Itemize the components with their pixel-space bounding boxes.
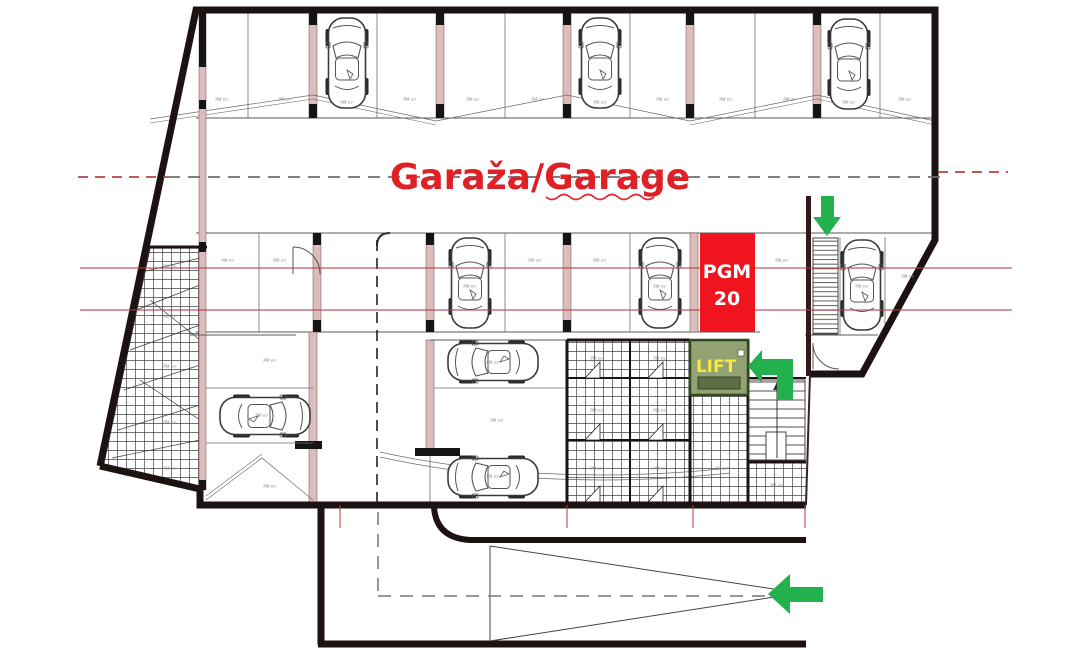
stall-label: PM m² (719, 97, 733, 102)
stall-label: PM m² (403, 97, 417, 102)
down-arrow-icon (813, 196, 841, 236)
car-icon (449, 238, 492, 328)
stall-label: PM m² (221, 258, 235, 263)
lift-marker: LIFT (690, 340, 748, 395)
stall-label: PM m² (255, 413, 269, 418)
stall-label: PM m² (901, 274, 915, 279)
stall-label: PM m² (656, 97, 670, 102)
stall-label: PM m² (590, 356, 604, 361)
stall-label: PM m² (770, 483, 784, 488)
floor-plan-drawing: PGM 20 LIFT Garaža/Garage PM m² PM m² PM… (0, 0, 1080, 660)
stall-label: PM m² (531, 97, 545, 102)
stall-label: PM m² (593, 258, 607, 263)
stall-label: PM m² (653, 284, 667, 289)
stall-label: PM m² (163, 364, 177, 369)
stall-label: PM m² (273, 258, 287, 263)
top-parking-row (150, 12, 935, 125)
stall-label: PM m² (463, 284, 477, 289)
pgm-20-marker: PGM 20 (700, 233, 755, 332)
stall-label: PM m² (593, 100, 607, 105)
stall-label: PM m² (163, 466, 177, 471)
stall-label: PM m² (163, 420, 177, 425)
car-icon (639, 238, 682, 328)
stall-label: PM m² (715, 466, 729, 471)
stall-label: PM m² (486, 474, 500, 479)
stall-label: PM m² (163, 264, 177, 269)
stall-label: PM m² (215, 97, 229, 102)
stall-label: PM m² (590, 408, 604, 413)
stall-label: PM m² (783, 97, 797, 102)
stall-label: PM m² (490, 418, 504, 423)
page-title: Garaža/Garage (390, 157, 690, 198)
car-icon (828, 19, 871, 109)
pgm-label-line1: PGM (703, 261, 751, 283)
stall-label: PM m² (528, 258, 542, 263)
car-icon (579, 18, 622, 108)
ramp-slope-triangle (490, 546, 800, 641)
garage-title: Garaža/Garage (390, 157, 690, 200)
lift-label: LIFT (696, 357, 737, 377)
car-icon (326, 18, 369, 108)
door-swing-icon (813, 343, 839, 369)
entry-ramp (318, 507, 806, 645)
floor-plan: PGM 20 LIFT Garaža/Garage PM m² PM m² PM… (0, 0, 1080, 660)
stall-label: PM m² (653, 408, 667, 413)
stall-label: PM m² (653, 356, 667, 361)
stall-label: PM m² (278, 97, 292, 102)
stall-label: PM m² (263, 484, 277, 489)
stall-label: PM m² (775, 258, 789, 263)
stall-label: PM m² (163, 314, 177, 319)
wall-columns (309, 12, 821, 118)
stall-label: PM m² (842, 100, 856, 105)
pgm-label-line2: 20 (714, 288, 740, 310)
stall-label: PM m² (340, 100, 354, 105)
stall-label: PM m² (653, 466, 667, 471)
stall-label: PM m² (898, 97, 912, 102)
stall-label: PM m² (263, 358, 277, 363)
stall-label: PM m² (855, 284, 869, 289)
entrance-arrow-icon (768, 574, 823, 614)
stall-label: PM m² (466, 97, 480, 102)
stall-label: PM m² (486, 360, 500, 365)
stall-label: PM m² (590, 466, 604, 471)
